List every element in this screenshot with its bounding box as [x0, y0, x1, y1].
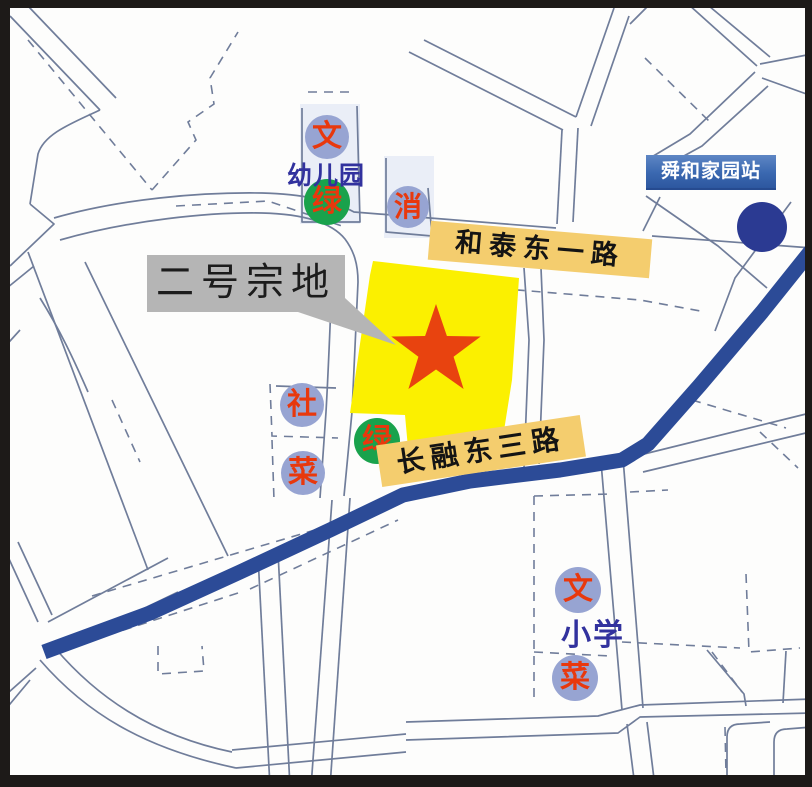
parcel-callout-label: 二号宗地 — [147, 255, 345, 312]
station-name-label: 舜和家园站 — [646, 155, 776, 190]
badge-market-icon: 菜 — [281, 451, 325, 495]
badge-culture-icon: 文 — [305, 115, 349, 159]
badge-community-icon: 社 — [280, 383, 324, 427]
badge-market-icon: 菜 — [552, 655, 598, 701]
primary-school-label: 小学 — [553, 610, 633, 654]
land-parcel-map: 二号宗地 和泰东一路 长融东三路 舜和家园站 文 绿 消 社 菜 绿 文 菜 幼… — [0, 0, 812, 787]
badge-fire-station-icon: 消 — [387, 186, 429, 228]
station-dot — [737, 202, 787, 252]
kindergarten-label: 幼儿园 — [280, 156, 372, 192]
badge-culture-icon: 文 — [555, 567, 601, 613]
map-canvas — [0, 0, 812, 787]
